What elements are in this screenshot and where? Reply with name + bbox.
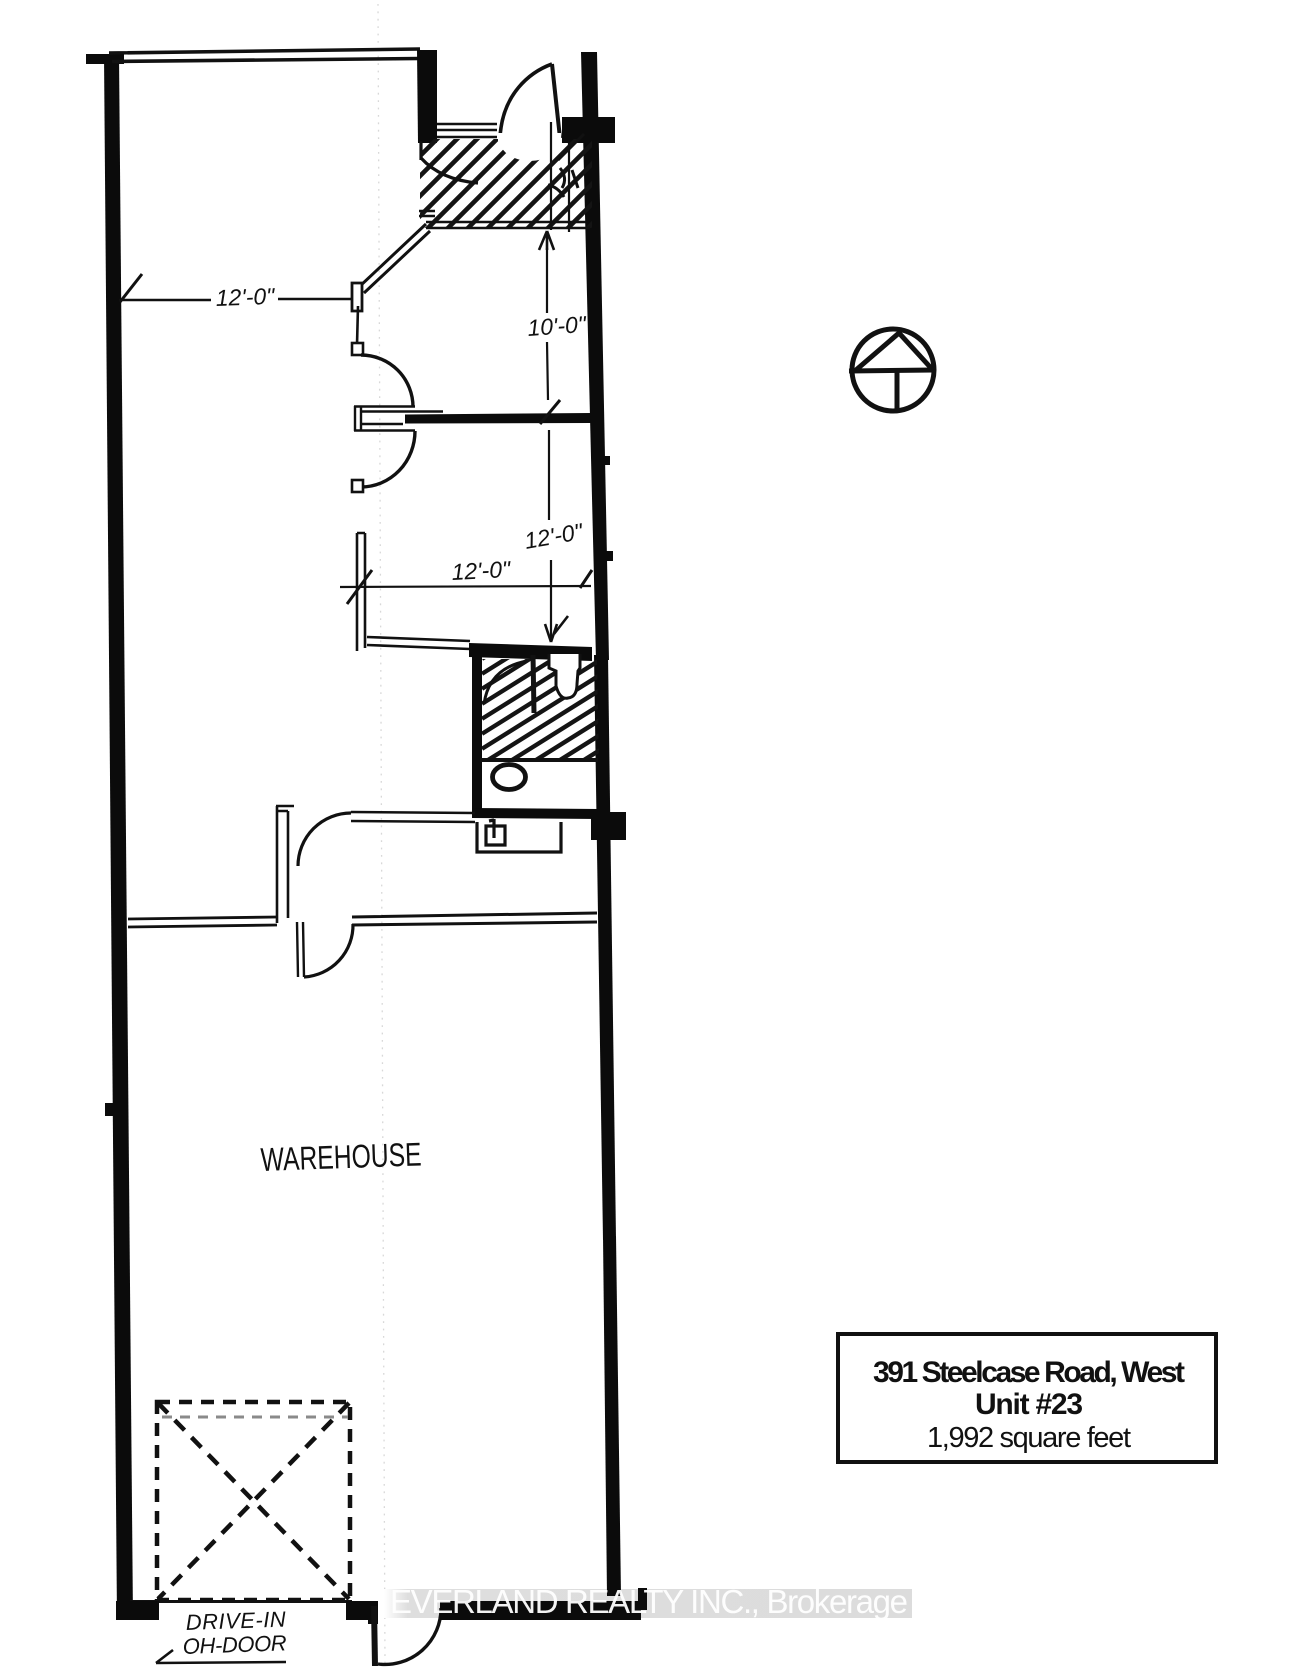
svg-text:12'-0": 12'-0" — [215, 283, 276, 311]
svg-text:12'-0": 12'-0" — [522, 518, 586, 554]
svg-text:1,992 square feet: 1,992 square feet — [927, 1422, 1131, 1454]
svg-text:EVERLAND REALTY INC., Brokerag: EVERLAND REALTY INC., Brokerage — [390, 1583, 908, 1620]
svg-text:391 Steelcase Road, West: 391 Steelcase Road, West — [873, 1356, 1185, 1389]
svg-text:10'-0": 10'-0" — [527, 311, 589, 341]
svg-text:12'-0": 12'-0" — [451, 556, 513, 585]
svg-text:OH-DOOR: OH-DOOR — [182, 1630, 287, 1659]
svg-text:Unit #23: Unit #23 — [975, 1388, 1083, 1421]
svg-text:WAREHOUSE: WAREHOUSE — [260, 1135, 422, 1178]
